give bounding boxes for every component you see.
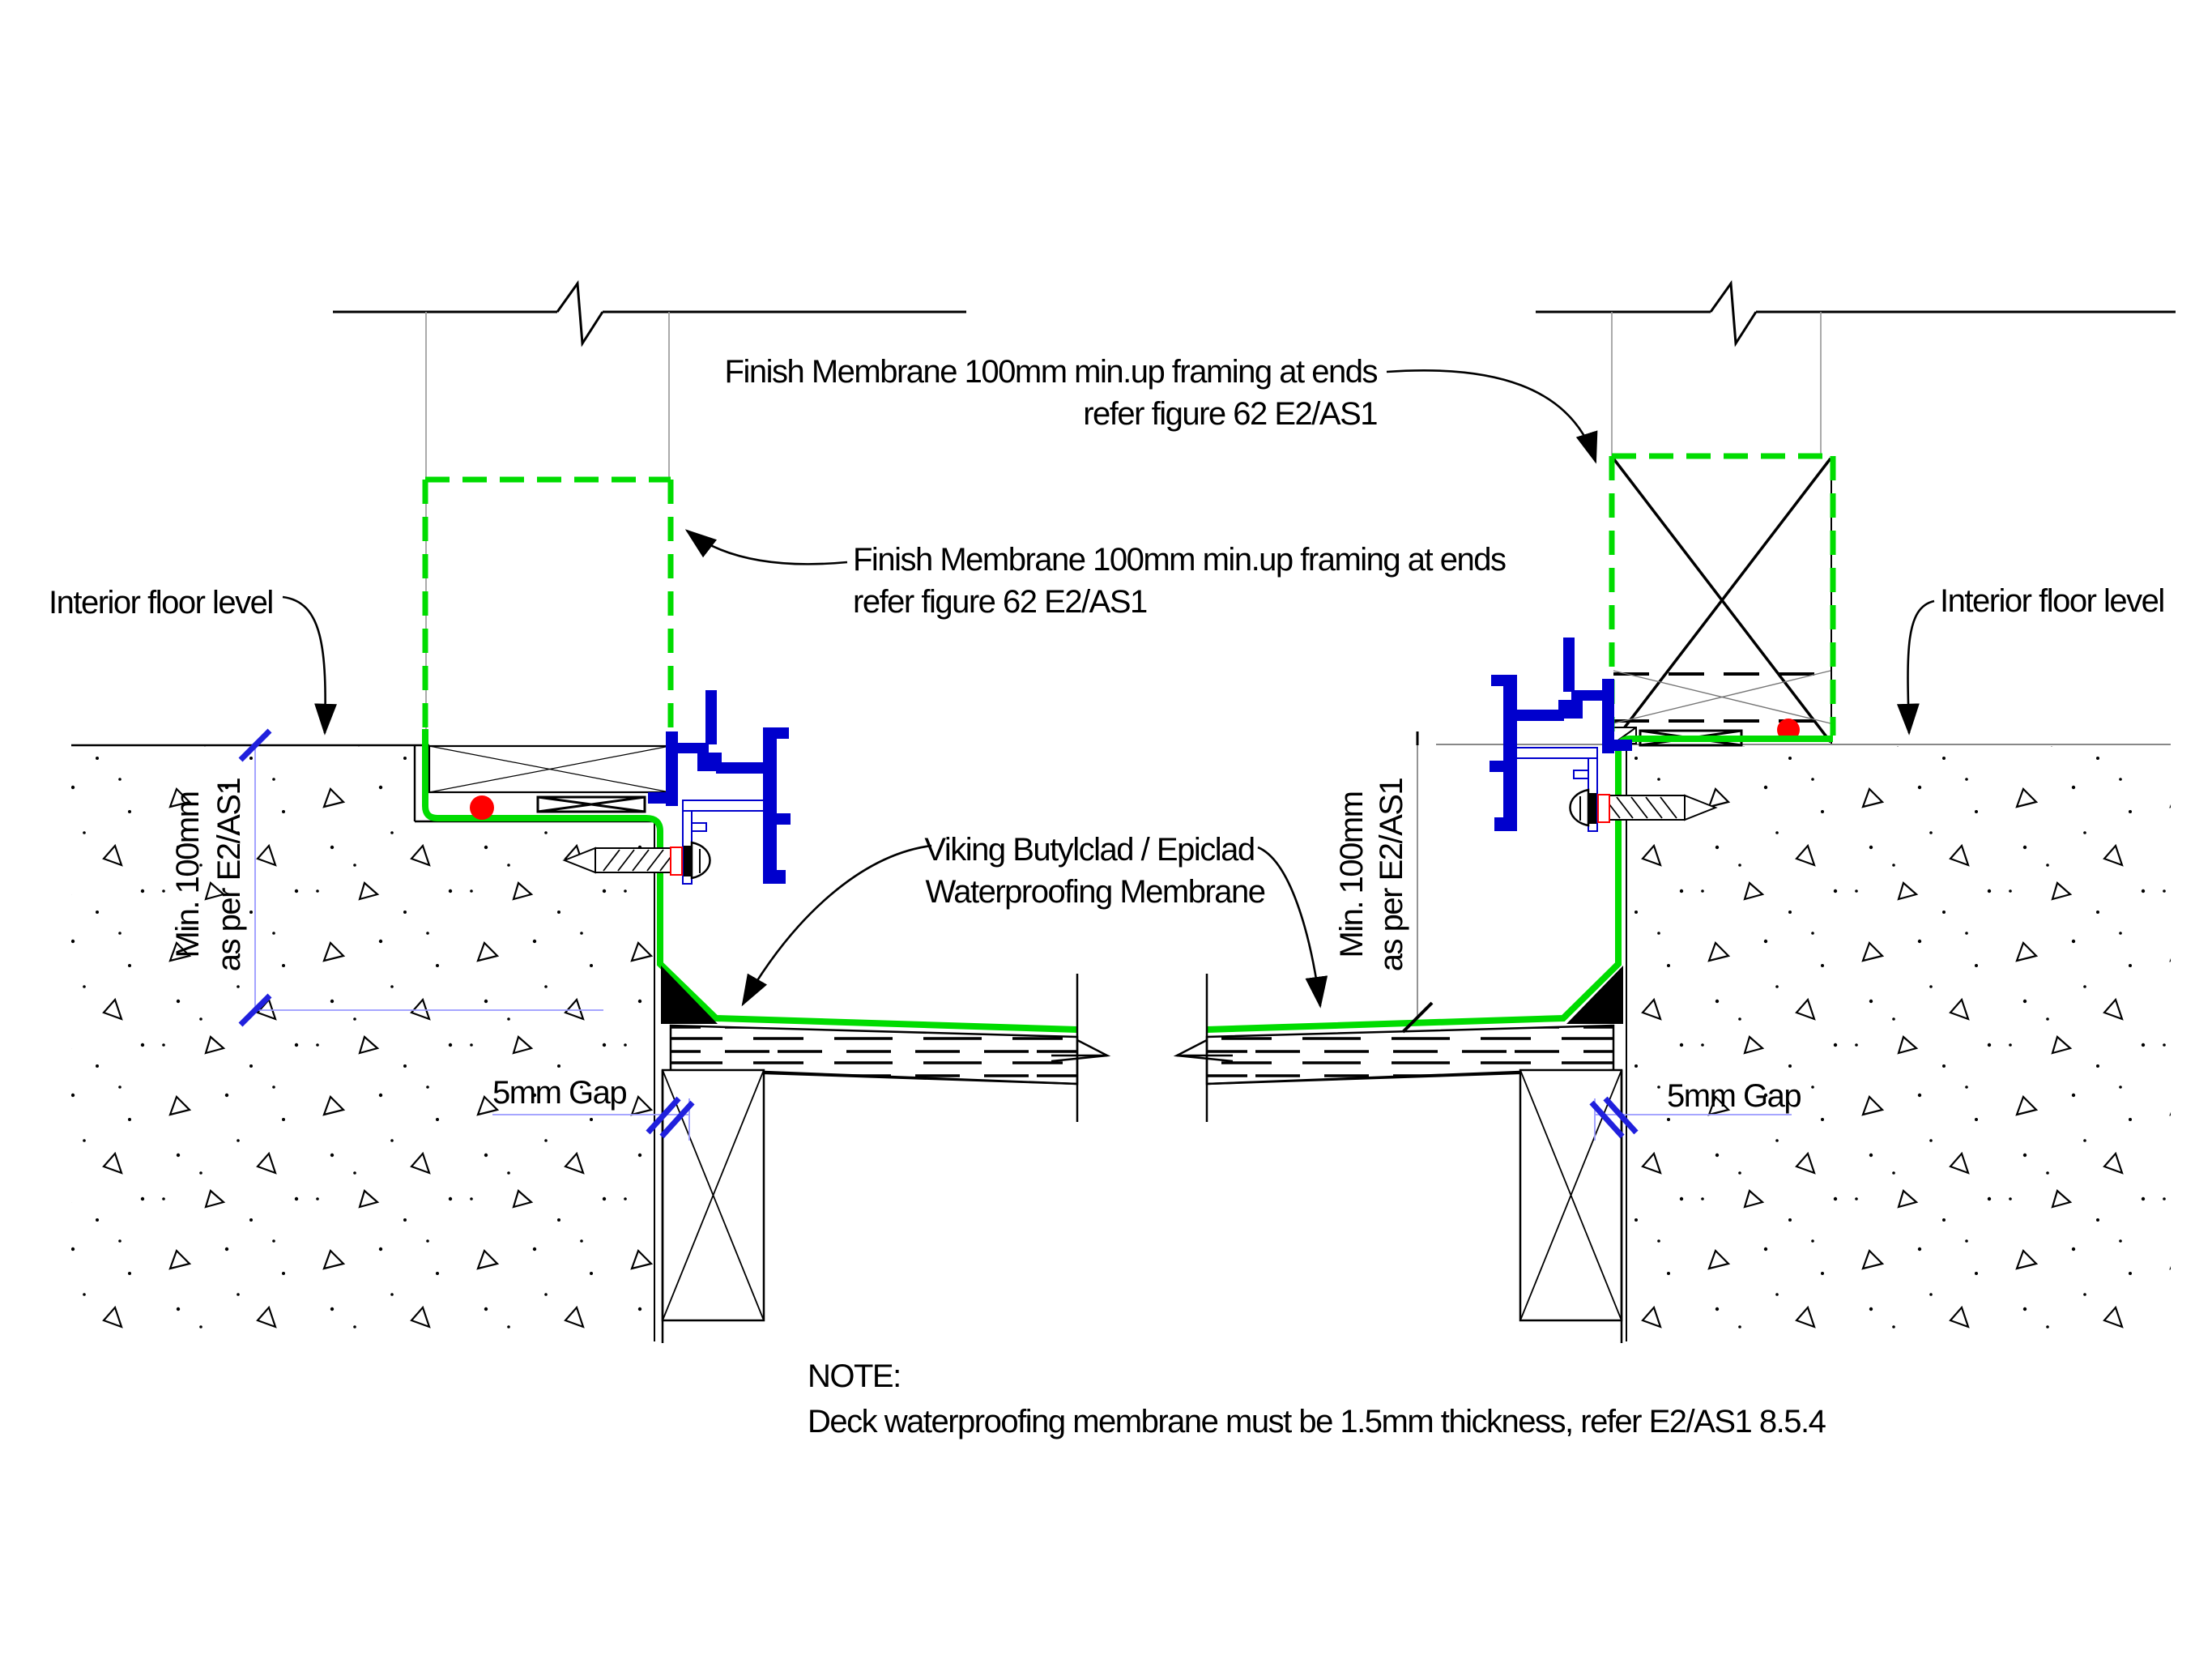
right-detail [1177, 284, 2176, 1343]
label-finish-membrane-top-line2: refer figure 62 E2/AS1 [1083, 396, 1377, 432]
deck-membrane-detail-drawing: Finish Membrane 100mm min.up framing at … [0, 0, 2212, 1659]
label-finish-membrane-mid-line2: refer figure 62 E2/AS1 [853, 584, 1147, 620]
label-membrane-product-line2: Waterproofing Membrane [925, 874, 1264, 910]
leader-floor-left [283, 597, 326, 733]
concrete-slab-left [71, 746, 654, 1341]
sill-framing-right [1613, 456, 1831, 745]
leader-finish-membrane-mid [687, 531, 847, 564]
leader-floor-right [1908, 601, 1934, 733]
leader-membrane-product-right [1258, 847, 1320, 1006]
note-heading: NOTE: [808, 1358, 901, 1394]
leader-finish-membrane-top [1387, 370, 1596, 462]
label-interior-floor-left: Interior floor level [49, 585, 273, 621]
label-min-height-left-line2: as per E2/AS1 [211, 778, 247, 972]
drawing-canvas: Finish Membrane 100mm min.up framing at … [0, 0, 2212, 1659]
label-finish-membrane-mid-line1: Finish Membrane 100mm min.up framing at … [853, 542, 1506, 578]
label-min-height-left-line1: Min. 100mm [170, 791, 206, 957]
label-membrane-product-line1: Viking Butylclad / Epiclad [924, 832, 1254, 868]
concrete-slab-right [1628, 746, 2171, 1341]
wall-break-line-right [1536, 284, 2176, 456]
label-finish-membrane-top-line1: Finish Membrane 100mm min.up framing at … [725, 354, 1378, 390]
seal-dot-left [470, 795, 494, 820]
label-min-height-right-line2: as per E2/AS1 [1374, 778, 1409, 972]
sill-framing-left [429, 746, 670, 820]
note-body: Deck waterproofing membrane must be 1.5m… [808, 1404, 1826, 1439]
label-gap-right: 5mm Gap [1667, 1078, 1801, 1114]
label-interior-floor-right: Interior floor level [1940, 583, 2164, 619]
membrane-dashed-box-left [425, 480, 671, 731]
label-min-height-right-line1: Min. 100mm [1334, 791, 1370, 957]
label-gap-left: 5mm Gap [492, 1075, 626, 1111]
